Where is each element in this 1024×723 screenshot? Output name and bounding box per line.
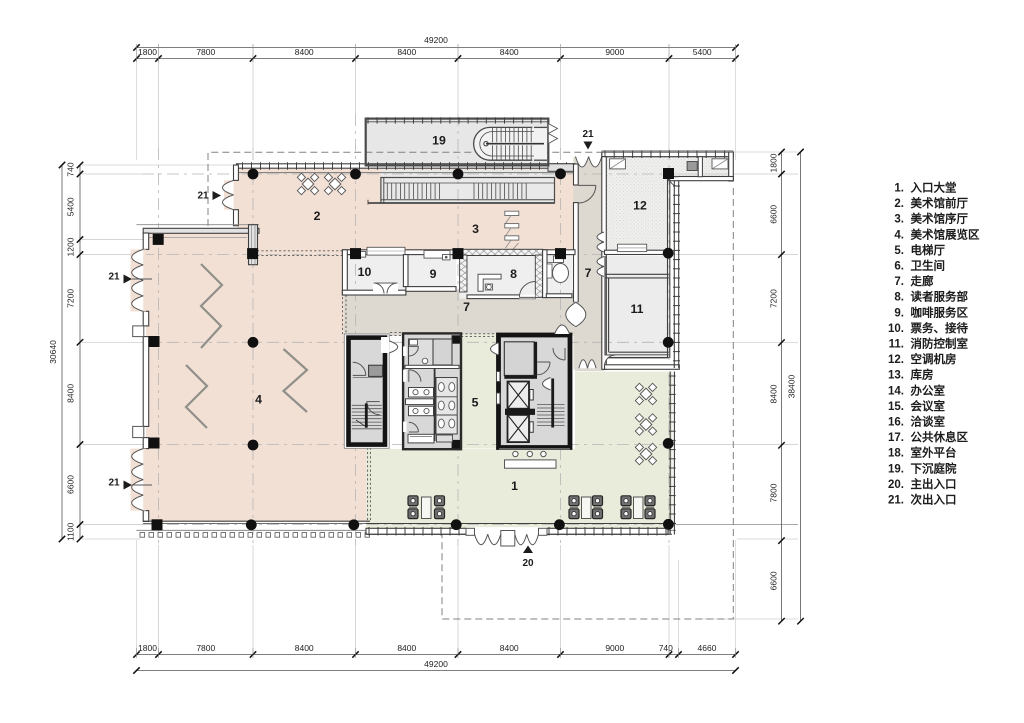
svg-text:7200: 7200	[66, 289, 76, 308]
svg-text:5: 5	[472, 396, 479, 410]
svg-text:电梯厅: 电梯厅	[911, 243, 946, 257]
svg-text:8400: 8400	[295, 47, 314, 57]
svg-text:11.: 11.	[889, 339, 904, 351]
svg-text:16.: 16.	[888, 417, 904, 429]
svg-text:12.: 12.	[888, 354, 904, 366]
svg-text:1200: 1200	[66, 237, 76, 256]
svg-text:7800: 7800	[196, 47, 215, 57]
svg-text:5400: 5400	[693, 47, 712, 57]
svg-text:空调机房: 空调机房	[911, 352, 957, 366]
svg-text:美术馆序厅: 美术馆序厅	[911, 212, 969, 226]
svg-text:库房: 库房	[911, 368, 934, 382]
svg-text:21: 21	[197, 191, 209, 202]
svg-text:740: 740	[659, 643, 673, 653]
svg-text:咖啡服务区: 咖啡服务区	[911, 305, 969, 319]
svg-text:49200: 49200	[424, 35, 448, 45]
svg-text:11: 11	[631, 302, 644, 316]
svg-text:2: 2	[314, 209, 321, 223]
svg-text:公共休息区: 公共休息区	[911, 430, 969, 444]
svg-text:票务、接待: 票务、接待	[911, 321, 969, 335]
svg-text:消防控制室: 消防控制室	[911, 337, 969, 351]
svg-text:8400: 8400	[500, 47, 519, 57]
svg-text:30640: 30640	[48, 340, 58, 364]
svg-text:7.: 7.	[894, 276, 904, 288]
svg-text:7: 7	[463, 300, 470, 314]
svg-text:49200: 49200	[424, 659, 448, 669]
svg-text:18.: 18.	[888, 448, 904, 460]
svg-text:入口大堂: 入口大堂	[911, 181, 957, 195]
svg-text:9.: 9.	[894, 307, 904, 319]
svg-text:6600: 6600	[66, 475, 76, 494]
svg-text:19.: 19.	[888, 463, 904, 475]
svg-text:14.: 14.	[888, 385, 904, 397]
svg-text:7200: 7200	[769, 289, 779, 308]
svg-text:21: 21	[582, 129, 594, 140]
svg-text:12: 12	[633, 199, 647, 213]
svg-text:6600: 6600	[769, 205, 779, 224]
svg-text:8400: 8400	[500, 643, 519, 653]
svg-text:10.: 10.	[888, 323, 904, 335]
svg-text:1800: 1800	[769, 153, 779, 172]
svg-text:7800: 7800	[196, 643, 215, 653]
svg-text:13.: 13.	[888, 370, 904, 382]
svg-text:9: 9	[430, 267, 437, 281]
svg-text:次出入口: 次出入口	[911, 493, 957, 507]
svg-text:4.: 4.	[894, 229, 904, 241]
svg-text:6600: 6600	[769, 571, 779, 590]
svg-text:9000: 9000	[605, 47, 624, 57]
svg-text:会议室: 会议室	[910, 399, 946, 413]
svg-text:5400: 5400	[66, 197, 76, 216]
svg-text:3.: 3.	[894, 214, 904, 226]
svg-text:8400: 8400	[397, 47, 416, 57]
svg-text:4: 4	[255, 393, 262, 407]
svg-text:8400: 8400	[397, 643, 416, 653]
svg-text:1800: 1800	[138, 643, 157, 653]
svg-text:8400: 8400	[295, 643, 314, 653]
svg-text:1800: 1800	[138, 47, 157, 57]
svg-text:5.: 5.	[894, 245, 904, 257]
svg-text:主出入口: 主出入口	[911, 477, 957, 491]
svg-text:6.: 6.	[894, 261, 904, 273]
svg-text:20: 20	[522, 558, 534, 569]
svg-text:3: 3	[472, 222, 479, 236]
svg-text:美术馆前厅: 美术馆前厅	[911, 196, 969, 210]
svg-text:8400: 8400	[769, 384, 779, 403]
svg-text:17.: 17.	[888, 432, 904, 444]
svg-text:美术馆展览区: 美术馆展览区	[911, 227, 980, 241]
svg-text:读者服务部: 读者服务部	[911, 290, 969, 304]
svg-text:20.: 20.	[888, 479, 904, 491]
svg-text:7800: 7800	[769, 483, 779, 502]
svg-text:走廊: 走廊	[910, 274, 934, 288]
svg-text:1.: 1.	[894, 183, 904, 195]
svg-text:卫生间: 卫生间	[911, 259, 946, 273]
svg-text:21.: 21.	[888, 495, 904, 507]
svg-text:2.: 2.	[894, 198, 904, 210]
svg-text:38400: 38400	[787, 375, 797, 399]
svg-text:9000: 9000	[605, 643, 624, 653]
svg-text:740: 740	[66, 162, 76, 176]
svg-text:1100: 1100	[66, 522, 76, 541]
svg-text:洽谈室: 洽谈室	[911, 415, 946, 429]
svg-text:7: 7	[585, 266, 592, 280]
svg-text:10: 10	[358, 265, 372, 279]
svg-text:21: 21	[108, 478, 120, 489]
svg-text:办公室: 办公室	[911, 383, 946, 397]
svg-text:15.: 15.	[888, 401, 904, 413]
svg-text:21: 21	[108, 272, 120, 283]
svg-text:8400: 8400	[66, 384, 76, 403]
svg-text:8: 8	[510, 267, 517, 281]
svg-text:1: 1	[511, 479, 518, 493]
svg-text:室外平台: 室外平台	[911, 446, 957, 460]
svg-text:下沉庭院: 下沉庭院	[911, 461, 957, 475]
svg-text:8.: 8.	[894, 292, 904, 304]
svg-text:19: 19	[432, 134, 446, 148]
svg-text:4660: 4660	[698, 643, 717, 653]
